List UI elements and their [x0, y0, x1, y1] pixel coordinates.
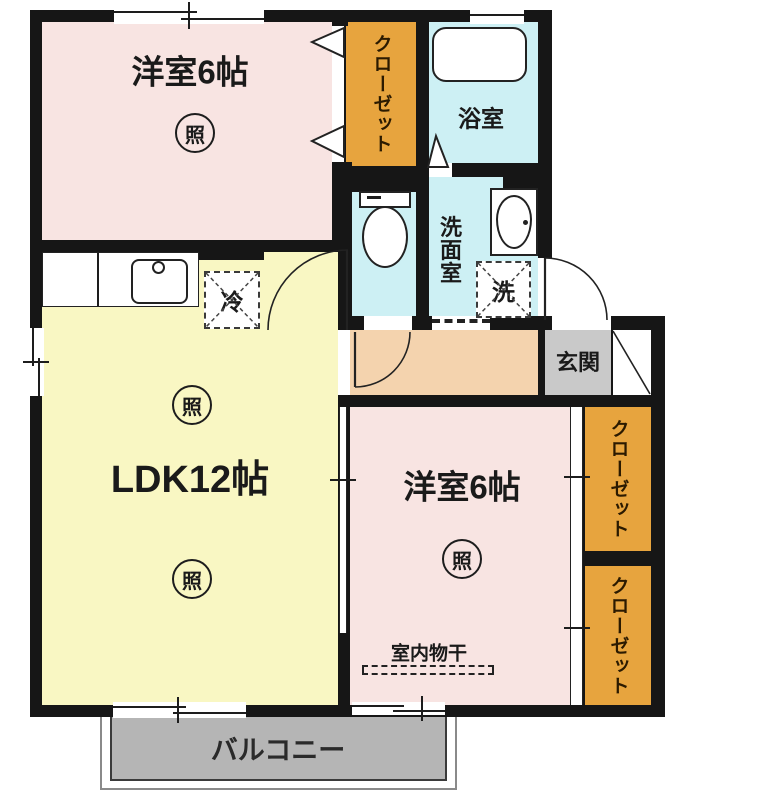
ceiling-light-symbol: 照 [442, 539, 482, 579]
balcony-sliding-door [352, 702, 445, 715]
bathtub-icon [432, 27, 527, 82]
bath-label: 浴室 [458, 108, 504, 131]
ceiling-light-symbol: 照 [175, 113, 215, 153]
entrance-label: 玄関 [556, 352, 600, 374]
closet-door-track [583, 407, 585, 705]
washer-label: 洗 [492, 273, 515, 307]
wall-segment [651, 316, 665, 717]
sliding-door-tick [564, 476, 590, 478]
wall-segment [611, 316, 665, 330]
kitchen-partition [198, 248, 264, 260]
ldk-label: LDK12帖 [111, 461, 269, 499]
sliding-door-tick [330, 479, 356, 481]
bedroom-right-label: 洋室6帖 [403, 471, 520, 504]
window [470, 7, 524, 24]
wall-segment [352, 316, 364, 330]
wall-segment [338, 166, 352, 330]
shoe-cabinet [613, 330, 651, 395]
wall-segment [416, 10, 429, 316]
fridge-box: 冷 [204, 271, 260, 329]
hallway [350, 330, 538, 395]
wall-segment [452, 163, 552, 177]
washing-machine-box: 洗 [476, 261, 531, 318]
wall-segment [538, 318, 552, 330]
sliding-door-tick [564, 627, 590, 629]
indoor-drying-label: 室内物干 [391, 645, 467, 664]
wall-segment [332, 10, 348, 26]
sink-cabinet-icon [490, 188, 538, 256]
dashed-boundary [432, 319, 490, 323]
wall-segment [338, 395, 665, 407]
shoe-cabinet-edge [611, 330, 613, 395]
toilet-bowl-icon [362, 206, 408, 268]
wall-segment [412, 316, 432, 330]
sliding-door [339, 407, 347, 633]
fridge-label: 冷 [221, 283, 244, 317]
closet-top-label: クローゼット [372, 34, 391, 154]
wall-segment [30, 240, 352, 252]
sliding-door [570, 407, 583, 705]
ceiling-light-symbol: 照 [172, 559, 212, 599]
floor-plan: バルコニー [0, 0, 759, 800]
faucet-icon [152, 261, 165, 274]
bedroom-top-label: 洋室6帖 [131, 56, 248, 89]
window [114, 7, 264, 24]
closet-door-track [344, 26, 346, 162]
wall-segment [538, 10, 552, 258]
indoor-drying-rail [362, 665, 494, 675]
ceiling-light-symbol: 照 [172, 385, 212, 425]
wall-segment [538, 330, 545, 395]
entrance-door-arc-icon [545, 258, 607, 320]
closet-right-upper-label: クローゼット [609, 419, 628, 539]
balcony-sliding-door [113, 702, 246, 718]
washroom-label: 洗面室 [438, 216, 460, 285]
window [28, 328, 44, 396]
balcony-label: バルコニー [211, 738, 345, 765]
closet-right-lower-label: クローゼット [609, 576, 628, 696]
